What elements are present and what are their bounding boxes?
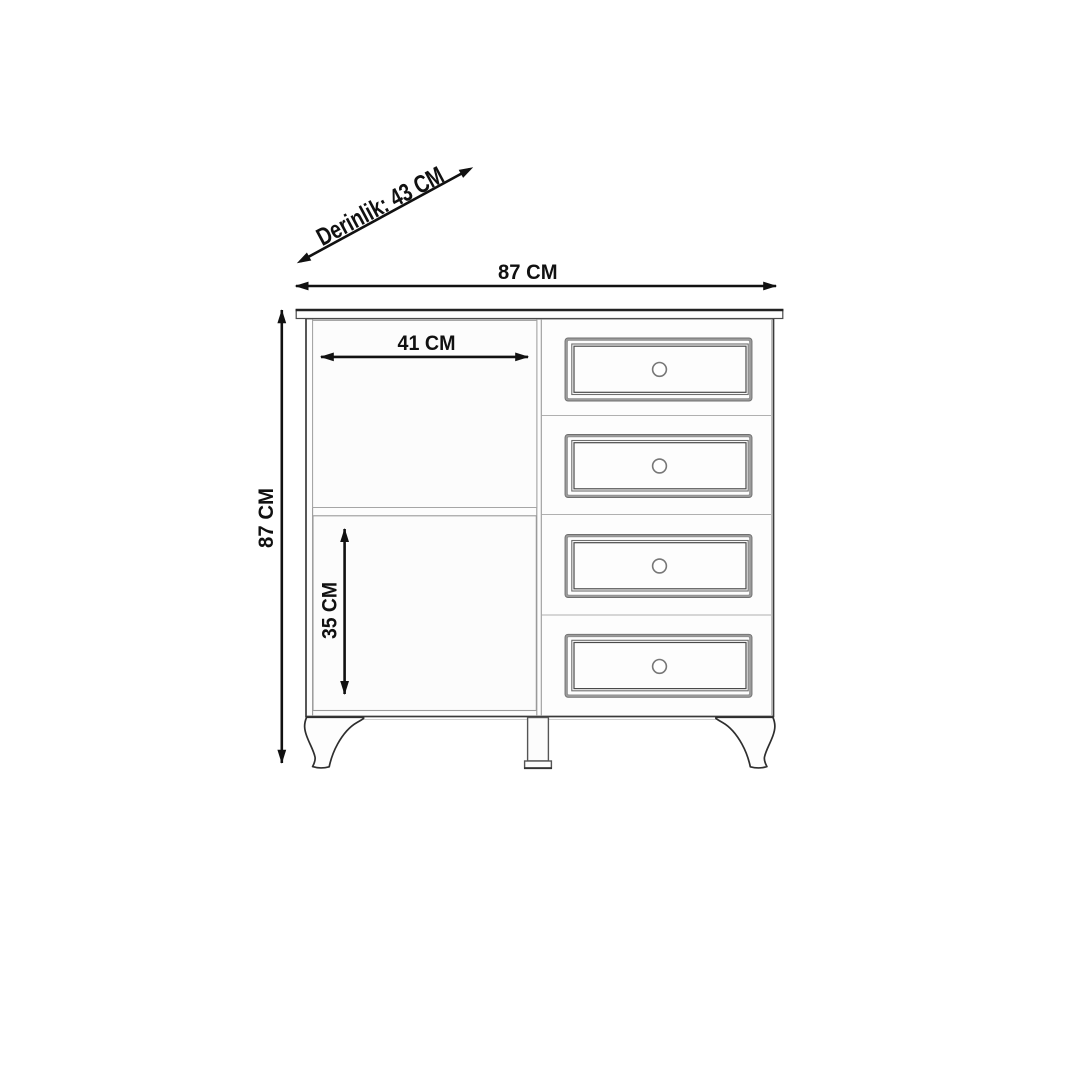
svg-text:41 CM: 41 CM [398,332,456,355]
svg-text:87 CM: 87 CM [498,261,558,284]
svg-text:35 CM: 35 CM [319,582,342,639]
svg-text:87 CM: 87 CM [255,488,278,548]
